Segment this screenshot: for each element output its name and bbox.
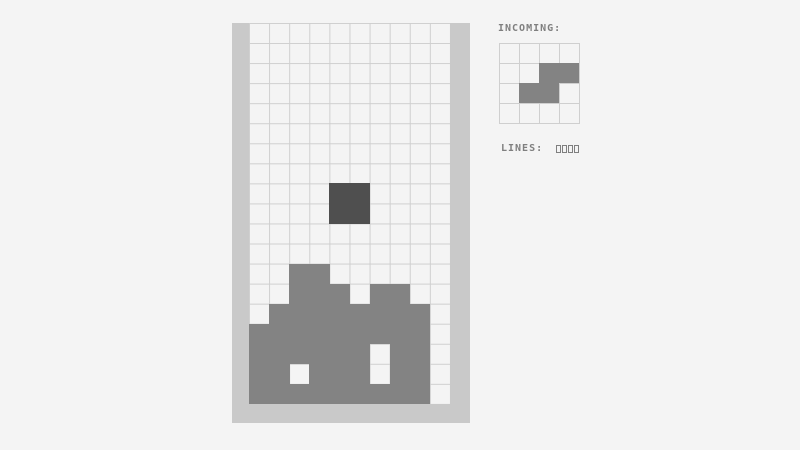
stack-cell xyxy=(309,364,330,385)
game-board xyxy=(232,23,470,423)
stack-cell xyxy=(370,384,391,405)
stack-cell xyxy=(249,324,270,345)
stack-cell xyxy=(289,304,310,325)
stack-cell xyxy=(410,384,431,405)
stack-cell xyxy=(410,364,431,385)
lines-label: LINES: xyxy=(501,143,543,154)
falling-piece-cell xyxy=(350,183,371,204)
stack-cell xyxy=(309,384,330,405)
stack-cell xyxy=(289,284,310,305)
stack-cell xyxy=(410,304,431,325)
falling-piece-cell xyxy=(350,203,371,224)
falling-piece-cell xyxy=(329,183,350,204)
preview-piece-cell xyxy=(559,63,579,83)
lines-digit-zero xyxy=(562,145,567,153)
stack-cell xyxy=(390,284,411,305)
stack-cell xyxy=(289,264,310,285)
board-left-wall xyxy=(232,23,249,423)
preview-piece-cell xyxy=(539,63,559,83)
stack-cell xyxy=(350,344,371,365)
lines-counter xyxy=(556,145,579,153)
preview-piece-cell xyxy=(539,83,559,103)
stack-cell xyxy=(269,324,290,345)
stack-cell xyxy=(410,324,431,345)
stack-cell xyxy=(350,304,371,325)
lines-digit-zero xyxy=(568,145,573,153)
stack-cell xyxy=(350,384,371,405)
stack-cell xyxy=(329,304,350,325)
stack-cell xyxy=(370,304,391,325)
stack-cell xyxy=(329,364,350,385)
stack-cell xyxy=(329,344,350,365)
stack-cell xyxy=(390,304,411,325)
stack-cell xyxy=(309,324,330,345)
stack-cell xyxy=(390,344,411,365)
lines-digit-zero xyxy=(574,145,579,153)
preview-piece-cell xyxy=(519,83,539,103)
stack-cell xyxy=(249,344,270,365)
board-floor xyxy=(232,404,470,423)
next-piece-preview xyxy=(499,43,580,124)
stack-cell xyxy=(390,384,411,405)
stack-cell xyxy=(350,324,371,345)
stack-cell xyxy=(289,384,310,405)
stack-cell xyxy=(249,384,270,405)
stack-cell xyxy=(249,364,270,385)
playfield[interactable] xyxy=(249,23,450,404)
stack-cell xyxy=(350,364,371,385)
stack-cell xyxy=(370,284,391,305)
stack-cell xyxy=(390,364,411,385)
falling-piece-cell xyxy=(329,203,350,224)
stack-cell xyxy=(309,344,330,365)
stack-cell xyxy=(329,384,350,405)
stack-cell xyxy=(390,324,411,345)
stack-cell xyxy=(370,324,391,345)
stack-cell xyxy=(309,304,330,325)
stack-cell xyxy=(269,344,290,365)
stack-cell xyxy=(309,284,330,305)
stack-cell xyxy=(309,264,330,285)
stack-cell xyxy=(269,384,290,405)
stack-cell xyxy=(410,344,431,365)
stack-cell xyxy=(329,324,350,345)
stack-cell xyxy=(289,324,310,345)
stack-cell xyxy=(329,284,350,305)
board-right-wall xyxy=(450,23,470,423)
stack-cell xyxy=(269,364,290,385)
lines-digit-zero xyxy=(556,145,561,153)
incoming-label: INCOMING: xyxy=(498,23,561,34)
stack-cell xyxy=(269,304,290,325)
stack-cell xyxy=(289,344,310,365)
